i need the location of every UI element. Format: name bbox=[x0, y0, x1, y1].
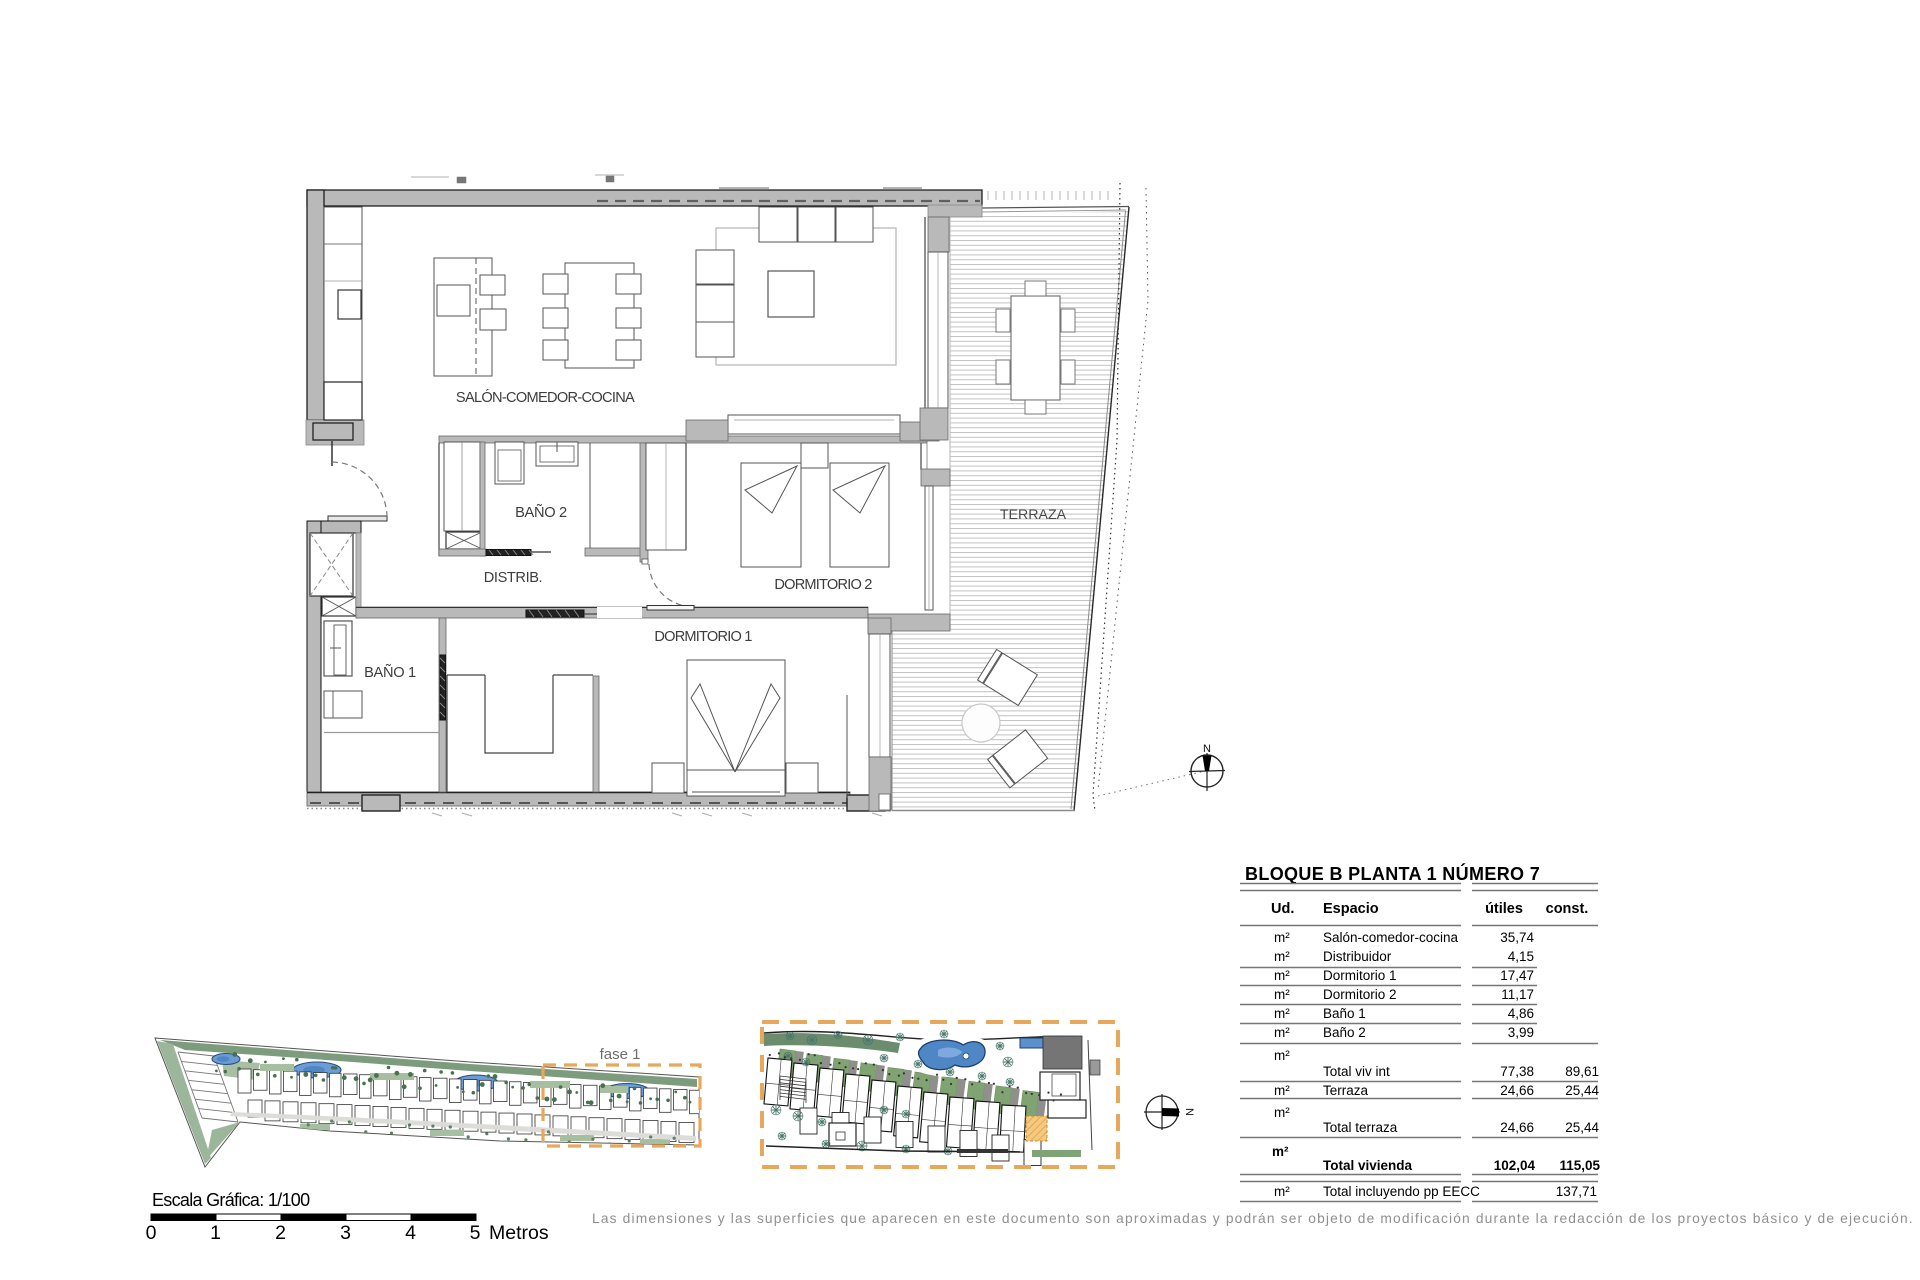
svg-text:m²: m² bbox=[1272, 1144, 1289, 1159]
svg-text:25,44: 25,44 bbox=[1565, 1083, 1599, 1098]
svg-text:77,38: 77,38 bbox=[1500, 1064, 1534, 1079]
svg-text:Escala Gráfica: 1/100: Escala Gráfica: 1/100 bbox=[152, 1190, 310, 1210]
svg-text:4,86: 4,86 bbox=[1508, 1006, 1534, 1021]
svg-text:Terraza: Terraza bbox=[1323, 1083, 1369, 1098]
svg-text:m²: m² bbox=[1274, 930, 1290, 945]
svg-text:89,61: 89,61 bbox=[1565, 1064, 1599, 1079]
svg-text:102,04: 102,04 bbox=[1494, 1158, 1536, 1173]
svg-text:N: N bbox=[1183, 1108, 1195, 1116]
svg-text:24,66: 24,66 bbox=[1500, 1083, 1534, 1098]
svg-text:5: 5 bbox=[470, 1222, 481, 1244]
svg-text:Total viv int: Total viv int bbox=[1323, 1064, 1390, 1079]
svg-text:m²: m² bbox=[1274, 1048, 1290, 1063]
svg-text:25,44: 25,44 bbox=[1565, 1120, 1599, 1135]
svg-text:SALÓN-COMEDOR-COCINA: SALÓN-COMEDOR-COCINA bbox=[456, 389, 635, 406]
svg-text:Salón-comedor-cocina: Salón-comedor-cocina bbox=[1323, 930, 1459, 945]
svg-text:Total vivienda: Total vivienda bbox=[1323, 1158, 1413, 1173]
svg-text:útiles: útiles bbox=[1485, 901, 1523, 917]
svg-text:Total terraza: Total terraza bbox=[1323, 1120, 1398, 1135]
svg-text:m²: m² bbox=[1274, 968, 1290, 983]
svg-text:0: 0 bbox=[146, 1222, 157, 1244]
svg-text:Espacio: Espacio bbox=[1323, 901, 1379, 917]
svg-text:Total incluyendo pp EECC: Total incluyendo pp EECC bbox=[1323, 1184, 1480, 1199]
svg-text:Ud.: Ud. bbox=[1271, 901, 1294, 917]
svg-text:Dormitorio 2: Dormitorio 2 bbox=[1323, 987, 1397, 1002]
svg-text:Baño 1: Baño 1 bbox=[1323, 1006, 1366, 1021]
svg-text:Las dimensiones y las superfic: Las dimensiones y las superficies que ap… bbox=[592, 1211, 1914, 1226]
svg-text:Distribuidor: Distribuidor bbox=[1323, 949, 1392, 964]
svg-text:1: 1 bbox=[210, 1222, 221, 1244]
svg-text:m²: m² bbox=[1274, 1025, 1290, 1040]
svg-text:DORMITORIO 2: DORMITORIO 2 bbox=[774, 577, 872, 593]
svg-text:Metros: Metros bbox=[489, 1222, 549, 1244]
svg-text:115,05: 115,05 bbox=[1559, 1158, 1600, 1173]
svg-text:m²: m² bbox=[1274, 1184, 1290, 1199]
svg-text:m²: m² bbox=[1274, 987, 1290, 1002]
svg-text:11,17: 11,17 bbox=[1501, 987, 1534, 1002]
svg-text:m²: m² bbox=[1274, 949, 1290, 964]
svg-text:m²: m² bbox=[1274, 1006, 1290, 1021]
svg-text:DISTRIB.: DISTRIB. bbox=[484, 570, 542, 586]
svg-text:35,74: 35,74 bbox=[1500, 930, 1534, 945]
svg-text:m²: m² bbox=[1274, 1105, 1290, 1120]
svg-text:TERRAZA: TERRAZA bbox=[1000, 507, 1067, 523]
svg-text:DORMITORIO 1: DORMITORIO 1 bbox=[654, 629, 752, 645]
svg-text:BAÑO 2: BAÑO 2 bbox=[515, 504, 567, 521]
svg-text:137,71: 137,71 bbox=[1556, 1184, 1597, 1199]
svg-text:3,99: 3,99 bbox=[1508, 1025, 1534, 1040]
svg-text:4,15: 4,15 bbox=[1508, 949, 1534, 964]
svg-text:m²: m² bbox=[1274, 1083, 1290, 1098]
svg-text:Dormitorio 1: Dormitorio 1 bbox=[1323, 968, 1397, 983]
svg-text:2: 2 bbox=[275, 1222, 286, 1244]
svg-text:N: N bbox=[1203, 743, 1211, 755]
svg-text:17,47: 17,47 bbox=[1500, 968, 1534, 983]
svg-text:BAÑO 1: BAÑO 1 bbox=[364, 664, 416, 681]
svg-text:Baño 2: Baño 2 bbox=[1323, 1025, 1366, 1040]
svg-text:3: 3 bbox=[340, 1222, 351, 1244]
svg-text:fase 1: fase 1 bbox=[600, 1046, 641, 1063]
svg-text:BLOQUE B PLANTA 1 NÚMERO 7: BLOQUE B PLANTA 1 NÚMERO 7 bbox=[1245, 863, 1540, 884]
svg-text:const.: const. bbox=[1546, 901, 1589, 917]
svg-text:4: 4 bbox=[405, 1222, 416, 1244]
svg-text:24,66: 24,66 bbox=[1500, 1120, 1534, 1135]
